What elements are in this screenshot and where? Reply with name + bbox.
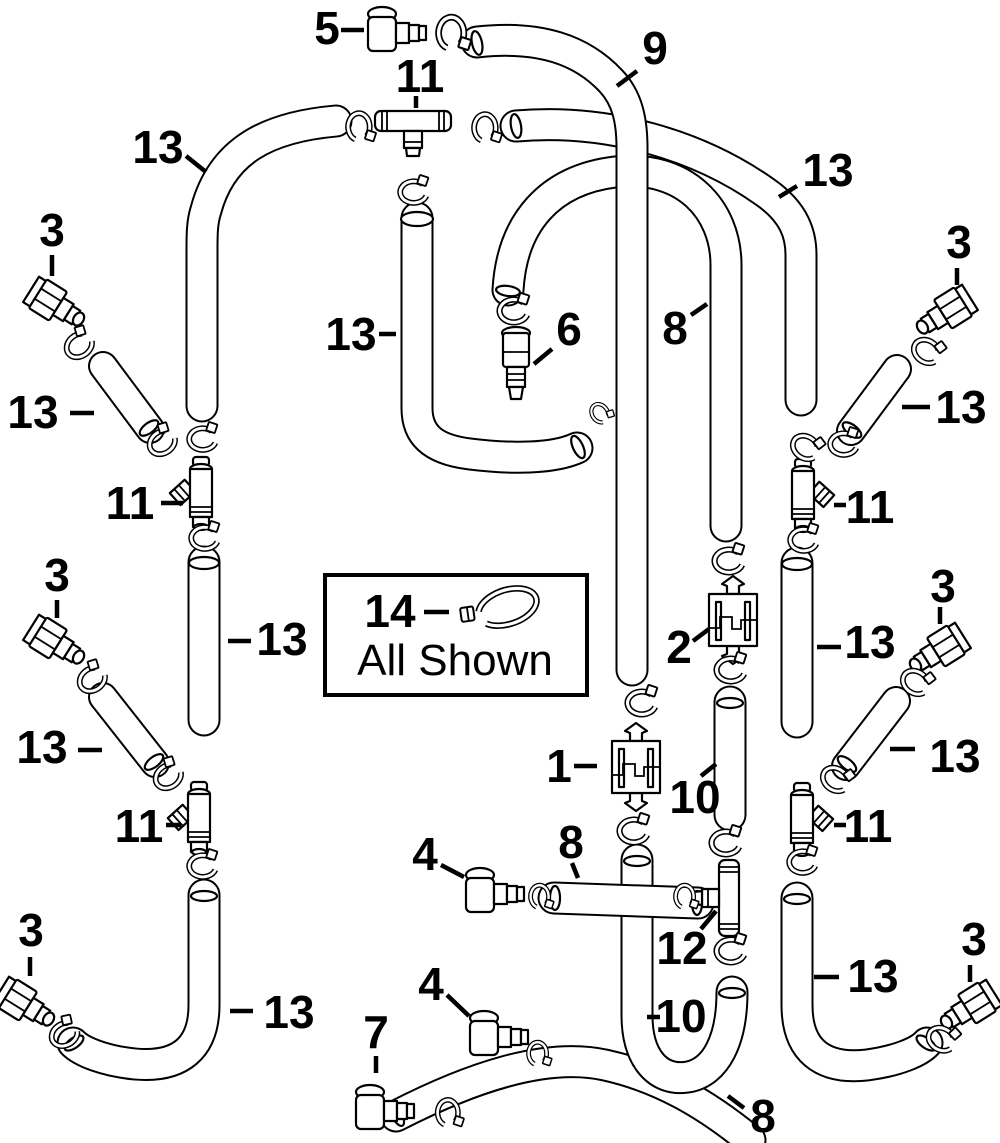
barb-fitting-3-top-right xyxy=(909,283,979,344)
callout-4-lower: 4 xyxy=(418,958,469,1016)
parts-diagram-page: 14 All Shown 5 11 9 13 13 3 3 13 13 13 6… xyxy=(0,0,1000,1143)
hose-13-top-right xyxy=(509,113,801,400)
svg-text:11: 11 xyxy=(106,477,155,529)
callout-3-left-2: 3 xyxy=(44,549,70,618)
svg-text:8: 8 xyxy=(558,816,584,868)
callout-13-right-1: 13 xyxy=(902,381,987,433)
svg-text:13: 13 xyxy=(935,381,986,433)
svg-text:13: 13 xyxy=(802,144,853,196)
legend-note: All Shown xyxy=(357,636,553,685)
svg-text:13: 13 xyxy=(16,721,67,773)
svg-text:6: 6 xyxy=(556,303,582,355)
svg-text:11: 11 xyxy=(115,800,164,852)
svg-text:5: 5 xyxy=(314,2,340,54)
elbow-fitting-4-upper xyxy=(466,868,524,912)
svg-text:13: 13 xyxy=(256,613,307,665)
svg-text:7: 7 xyxy=(363,1006,389,1058)
svg-text:8: 8 xyxy=(750,1090,776,1142)
callout-5: 5 xyxy=(314,2,364,54)
svg-text:1: 1 xyxy=(546,740,572,792)
svg-text:3: 3 xyxy=(961,913,987,965)
hose-13-left-diagonal-lower xyxy=(103,697,166,773)
hose-13-left-vertical xyxy=(189,557,219,720)
svg-text:3: 3 xyxy=(44,549,70,601)
svg-text:13: 13 xyxy=(263,986,314,1038)
svg-text:11: 11 xyxy=(844,800,893,852)
svg-text:9: 9 xyxy=(642,22,668,74)
connector-block-2 xyxy=(709,576,757,664)
callout-3-bottom-left: 3 xyxy=(18,904,44,976)
svg-text:13: 13 xyxy=(929,730,980,782)
svg-text:3: 3 xyxy=(930,560,956,612)
hose-13-right-vertical xyxy=(782,558,812,722)
svg-text:13: 13 xyxy=(844,616,895,668)
svg-text:11: 11 xyxy=(396,50,445,102)
exploded-parts-diagram: 14 All Shown 5 11 9 13 13 3 3 13 13 13 6… xyxy=(0,0,1000,1143)
callout-1: 1 xyxy=(546,740,597,792)
callout-12: 12 xyxy=(656,911,716,974)
callout-11-top: 11 xyxy=(396,50,445,108)
svg-text:13: 13 xyxy=(132,121,183,173)
svg-text:4: 4 xyxy=(418,958,444,1010)
callout-13-left-2: 13 xyxy=(16,721,102,773)
callout-7: 7 xyxy=(363,1006,389,1073)
svg-text:10: 10 xyxy=(669,771,720,823)
inline-fitting-6 xyxy=(502,327,530,399)
callouts: 5 11 9 13 13 3 3 13 13 13 6 8 11 11 3 3 … xyxy=(7,2,986,1142)
callout-8-top: 8 xyxy=(662,302,707,354)
connector-block-1 xyxy=(612,723,660,811)
svg-text:3: 3 xyxy=(18,904,44,956)
svg-text:13: 13 xyxy=(847,950,898,1002)
callout-13-center-top: 13 xyxy=(325,308,396,360)
legend-number: 14 xyxy=(364,585,416,637)
callout-13-center-right: 13 xyxy=(817,616,896,668)
callout-4-upper: 4 xyxy=(412,828,464,880)
callout-2: 2 xyxy=(666,621,709,673)
callout-13-bottom-left: 13 xyxy=(230,986,315,1038)
hose-13-top-left xyxy=(202,121,336,406)
callout-10-center: 10 xyxy=(669,764,720,823)
callout-11-right-1: 11 xyxy=(834,481,894,533)
elbow-fitting-5 xyxy=(368,7,426,51)
callout-13-center-left: 13 xyxy=(228,613,308,665)
callout-13-right-2: 13 xyxy=(890,730,981,782)
hose-13-right-diagonal-lower xyxy=(835,701,896,775)
callout-6: 6 xyxy=(534,303,582,364)
callout-3-top-left: 3 xyxy=(39,204,65,276)
callout-11-left-1: 11 xyxy=(106,477,183,529)
tee-fitting-11-top xyxy=(375,111,451,156)
check-valve-11-left-lower xyxy=(168,782,210,855)
svg-text:11: 11 xyxy=(846,481,895,533)
callout-3-right-2: 3 xyxy=(930,560,956,624)
callout-3-top-right: 3 xyxy=(946,216,972,285)
legend-box: 14 All Shown xyxy=(325,575,587,695)
svg-text:3: 3 xyxy=(39,204,65,256)
hose-10-center xyxy=(717,698,743,815)
svg-text:2: 2 xyxy=(666,621,692,673)
hose-13-bottom-left xyxy=(62,891,217,1065)
barb-fitting-3-mid-left xyxy=(22,613,92,674)
check-valve-11-left-upper xyxy=(170,457,212,530)
svg-text:13: 13 xyxy=(7,386,58,438)
callout-11-right-2: 11 xyxy=(834,800,892,852)
svg-text:3: 3 xyxy=(946,216,972,268)
callout-13-bottom-right: 13 xyxy=(814,950,899,1002)
hose-13-left-diagonal-upper xyxy=(103,366,161,439)
svg-text:13: 13 xyxy=(325,308,376,360)
elbow-fitting-4-lower xyxy=(470,1011,528,1055)
callout-10-bottom: 10 xyxy=(647,990,707,1042)
callout-13-top-left: 13 xyxy=(132,121,206,173)
svg-text:10: 10 xyxy=(655,990,706,1042)
callout-11-left-2: 11 xyxy=(115,800,181,852)
callout-13-top-right: 13 xyxy=(779,144,854,197)
svg-text:12: 12 xyxy=(656,922,707,974)
callout-13-left-1: 13 xyxy=(7,386,94,438)
check-valve-11-right-upper xyxy=(792,459,834,532)
svg-text:8: 8 xyxy=(662,302,688,354)
callout-8-center: 8 xyxy=(558,816,584,878)
svg-text:4: 4 xyxy=(412,828,438,880)
callout-3-bottom-right: 3 xyxy=(961,913,987,982)
